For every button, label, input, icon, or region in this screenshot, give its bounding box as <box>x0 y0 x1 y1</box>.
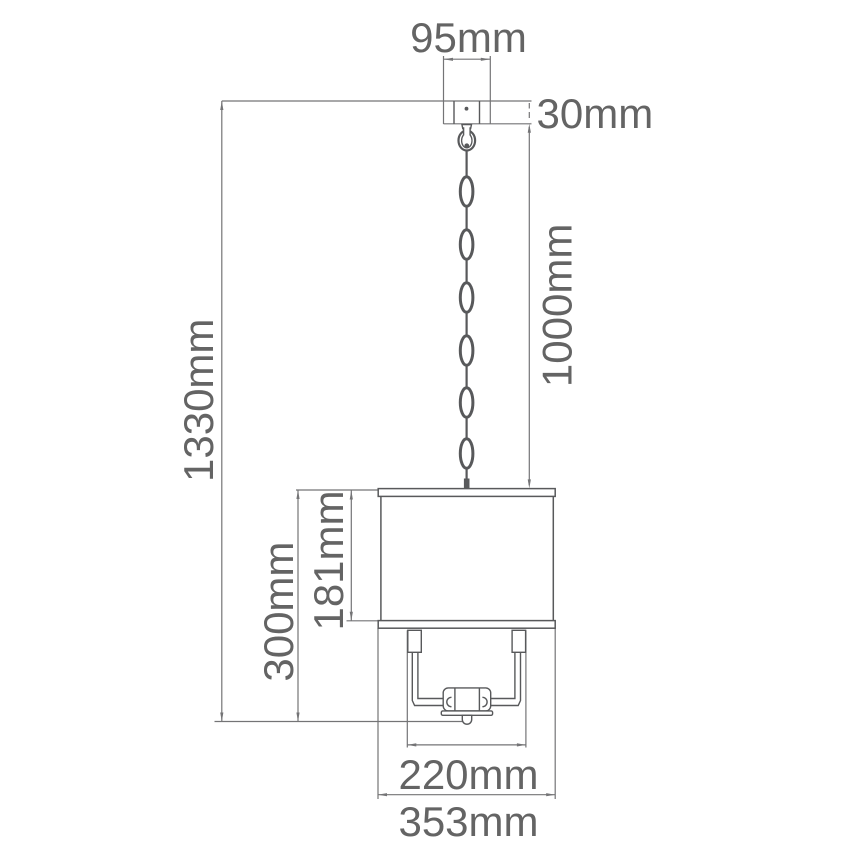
svg-text:95mm: 95mm <box>410 14 527 61</box>
svg-text:1000mm: 1000mm <box>534 224 581 387</box>
svg-text:300mm: 300mm <box>255 542 302 682</box>
svg-text:1330mm: 1330mm <box>175 319 222 482</box>
svg-text:353mm: 353mm <box>398 798 538 845</box>
svg-text:30mm: 30mm <box>537 90 654 137</box>
svg-text:181mm: 181mm <box>305 490 352 630</box>
svg-text:220mm: 220mm <box>398 751 538 798</box>
